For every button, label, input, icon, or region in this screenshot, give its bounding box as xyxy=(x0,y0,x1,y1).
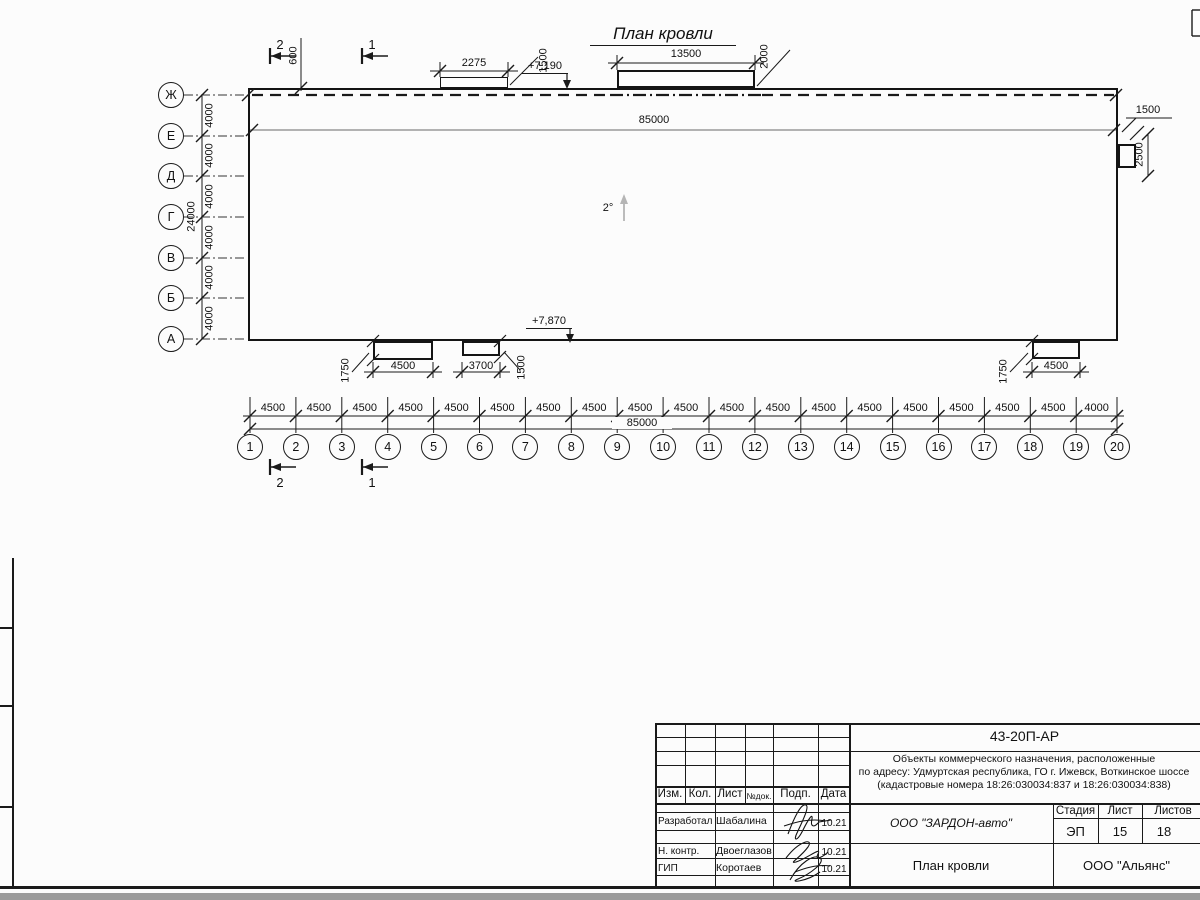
section-marker-1-top-label: 1 xyxy=(364,38,380,52)
tb-line xyxy=(655,751,1200,752)
doc-number: 43-20П-АР xyxy=(849,728,1200,744)
sig-row-name: Шабалина xyxy=(716,815,772,827)
dim-2000-label: 2000 xyxy=(759,37,772,77)
row-axis-Е: Е xyxy=(158,123,184,149)
left-spacing-label: 4000 xyxy=(204,138,217,174)
grid-axis-5: 5 xyxy=(421,434,447,460)
dim-1750-a-label: 1750 xyxy=(340,351,353,391)
dim-85000-bottom-label: 85000 xyxy=(612,417,672,429)
section-marker-2-top-arrow xyxy=(271,52,281,60)
col-header-podp: Подп. xyxy=(773,788,818,800)
section-marker-1-bottom-arrow xyxy=(363,463,373,471)
sig-row-name: Двоеглазов xyxy=(716,845,774,857)
slope-arrow-head xyxy=(620,194,628,204)
dim-1750-c-label: 1750 xyxy=(998,352,1011,392)
dim-tick xyxy=(367,335,379,347)
bottom-spacing-label: 4500 xyxy=(434,402,480,414)
stage-value: ЭП xyxy=(1053,824,1098,839)
bottom-spacing-label: 4500 xyxy=(801,402,847,414)
tb-line xyxy=(655,830,849,831)
grid-axis-10: 10 xyxy=(650,434,676,460)
left-spacing-label: 4000 xyxy=(204,260,217,296)
elevation-bottom-label: +7,870 xyxy=(526,315,572,329)
bottom-spacing-label: 4500 xyxy=(525,402,571,414)
organization-name: ООО "Альянс" xyxy=(1053,858,1200,873)
project-description-line: Объекты коммерческого назначения, распол… xyxy=(845,753,1200,765)
row-axis-Б: Б xyxy=(158,285,184,311)
bottom-spacing-label: 4500 xyxy=(663,402,709,414)
tb-line xyxy=(655,723,657,886)
left-spacing-label: 4000 xyxy=(204,301,217,337)
bottom-spacing-label: 4500 xyxy=(938,402,984,414)
grid-axis-2: 2 xyxy=(283,434,309,460)
bottom-spacing-label: 4000 xyxy=(1074,402,1120,414)
left-spacing-label: 4000 xyxy=(204,220,217,256)
grid-axis-19: 19 xyxy=(1063,434,1089,460)
bottom-spacing-label: 4500 xyxy=(893,402,939,414)
bottom-spacing-label: 4500 xyxy=(571,402,617,414)
sig-row-date: 10.21 xyxy=(820,818,848,829)
dim-2500-label: 2500 xyxy=(1134,135,1147,175)
dim-4500-c-label: 4500 xyxy=(1030,360,1082,372)
sheets-label: Листов xyxy=(1142,805,1200,817)
project-description-line: по адресу: Удмуртская республика, ГО г. … xyxy=(845,766,1200,778)
dim-4500-a-label: 4500 xyxy=(377,360,429,372)
dim-85000-top-label: 85000 xyxy=(624,114,684,126)
sheet-label: Лист xyxy=(1098,805,1142,817)
company-name: ООО "ЗАРДОН-авто" xyxy=(849,816,1053,830)
bottom-spacing-label: 4500 xyxy=(342,402,388,414)
sig-row-date: 10.21 xyxy=(820,864,848,875)
leader-1750-a xyxy=(352,353,369,372)
bottom-spacing-label: 4500 xyxy=(296,402,342,414)
tb-line xyxy=(655,843,1200,844)
col-header-ndok: №док. xyxy=(745,791,773,801)
drawing-name: План кровли xyxy=(849,858,1053,873)
bottom-spacing-label: 4500 xyxy=(479,402,525,414)
tb-line xyxy=(655,875,849,876)
col-header-list: Лист xyxy=(715,788,745,800)
left-spacing-label: 4000 xyxy=(204,98,217,134)
dim-13500-label: 13500 xyxy=(656,48,716,60)
section-marker-2-top-label: 2 xyxy=(272,38,288,52)
bottom-spacing-label: 4500 xyxy=(1030,402,1076,414)
section-marker-1-bottom-label: 1 xyxy=(364,476,380,490)
leader-1750-c xyxy=(1010,353,1028,372)
row-axis-Д: Д xyxy=(158,163,184,189)
grid-axis-13: 13 xyxy=(788,434,814,460)
elevation-top-arrow-head xyxy=(563,80,571,89)
sig-row-date: 10.21 xyxy=(820,847,848,858)
col-header-izm: Изм. xyxy=(655,788,685,800)
dim-1500-right-label: 1500 xyxy=(1128,104,1168,116)
bottom-spacing-label: 4500 xyxy=(847,402,893,414)
grid-axis-3: 3 xyxy=(329,434,355,460)
col-header-kol: Кол. xyxy=(685,788,715,800)
section-marker-1-top-arrow xyxy=(363,52,373,60)
sig-row-role: Н. контр. xyxy=(658,846,714,857)
elevation-top-label: +7,190 xyxy=(522,60,568,74)
grid-axis-6: 6 xyxy=(467,434,493,460)
elevation-bottom-arrow-head xyxy=(566,334,574,343)
bottom-spacing-label: 4500 xyxy=(709,402,755,414)
bottom-spacing-label: 4500 xyxy=(755,402,801,414)
dim-tick xyxy=(1122,118,1136,132)
stage-label: Стадия xyxy=(1053,805,1098,817)
left-total-label: 24000 xyxy=(186,193,199,241)
grid-axis-20: 20 xyxy=(1104,434,1130,460)
dim-600-label: 600 xyxy=(288,39,301,73)
dim-1500-b-label: 1500 xyxy=(516,348,529,388)
slope-label: 2° xyxy=(598,202,618,214)
project-description-line: (кадастровые номера 18:26:030034:837 и 1… xyxy=(845,779,1200,791)
sig-row-role: Разработал xyxy=(658,816,714,827)
sig-row-name: Коротаев xyxy=(716,862,774,874)
grid-axis-14: 14 xyxy=(834,434,860,460)
tb-line xyxy=(655,812,849,813)
bottom-spacing-label: 4500 xyxy=(984,402,1030,414)
dim-tick xyxy=(1026,335,1038,347)
grid-axis-9: 9 xyxy=(604,434,630,460)
tb-line xyxy=(655,723,1200,725)
dim-2275-label: 2275 xyxy=(448,57,500,69)
bottom-spacing-label: 4500 xyxy=(617,402,663,414)
dim-3700-b-label: 3700 xyxy=(455,360,507,372)
row-axis-В: В xyxy=(158,245,184,271)
tb-line xyxy=(655,858,849,859)
tb-line xyxy=(1053,818,1200,819)
left-spacing-label: 4000 xyxy=(204,179,217,215)
row-axis-Ж: Ж xyxy=(158,82,184,108)
sheets-value: 18 xyxy=(1142,824,1186,839)
grid-axis-15: 15 xyxy=(880,434,906,460)
grid-axis-4: 4 xyxy=(375,434,401,460)
sheet-value: 15 xyxy=(1098,824,1142,839)
drawing-sheet: { "colors": { "line": "#1a1a1a", "gray_l… xyxy=(0,0,1200,900)
col-header-data: Дата xyxy=(818,788,849,800)
row-axis-Г: Г xyxy=(158,204,184,230)
bottom-spacing-label: 4500 xyxy=(250,402,296,414)
tb-line xyxy=(818,723,819,886)
grid-axis-12: 12 xyxy=(742,434,768,460)
grid-axis-1: 1 xyxy=(237,434,263,460)
grid-axis-11: 11 xyxy=(696,434,722,460)
row-axis-А: А xyxy=(158,326,184,352)
dim-tick xyxy=(494,335,506,347)
sig-row-role: ГИП xyxy=(658,863,714,874)
bottom-spacing-label: 4500 xyxy=(388,402,434,414)
section-marker-2-bottom-label: 2 xyxy=(272,476,288,490)
section-marker-2-bottom-arrow xyxy=(271,463,281,471)
grid-axis-16: 16 xyxy=(926,434,952,460)
